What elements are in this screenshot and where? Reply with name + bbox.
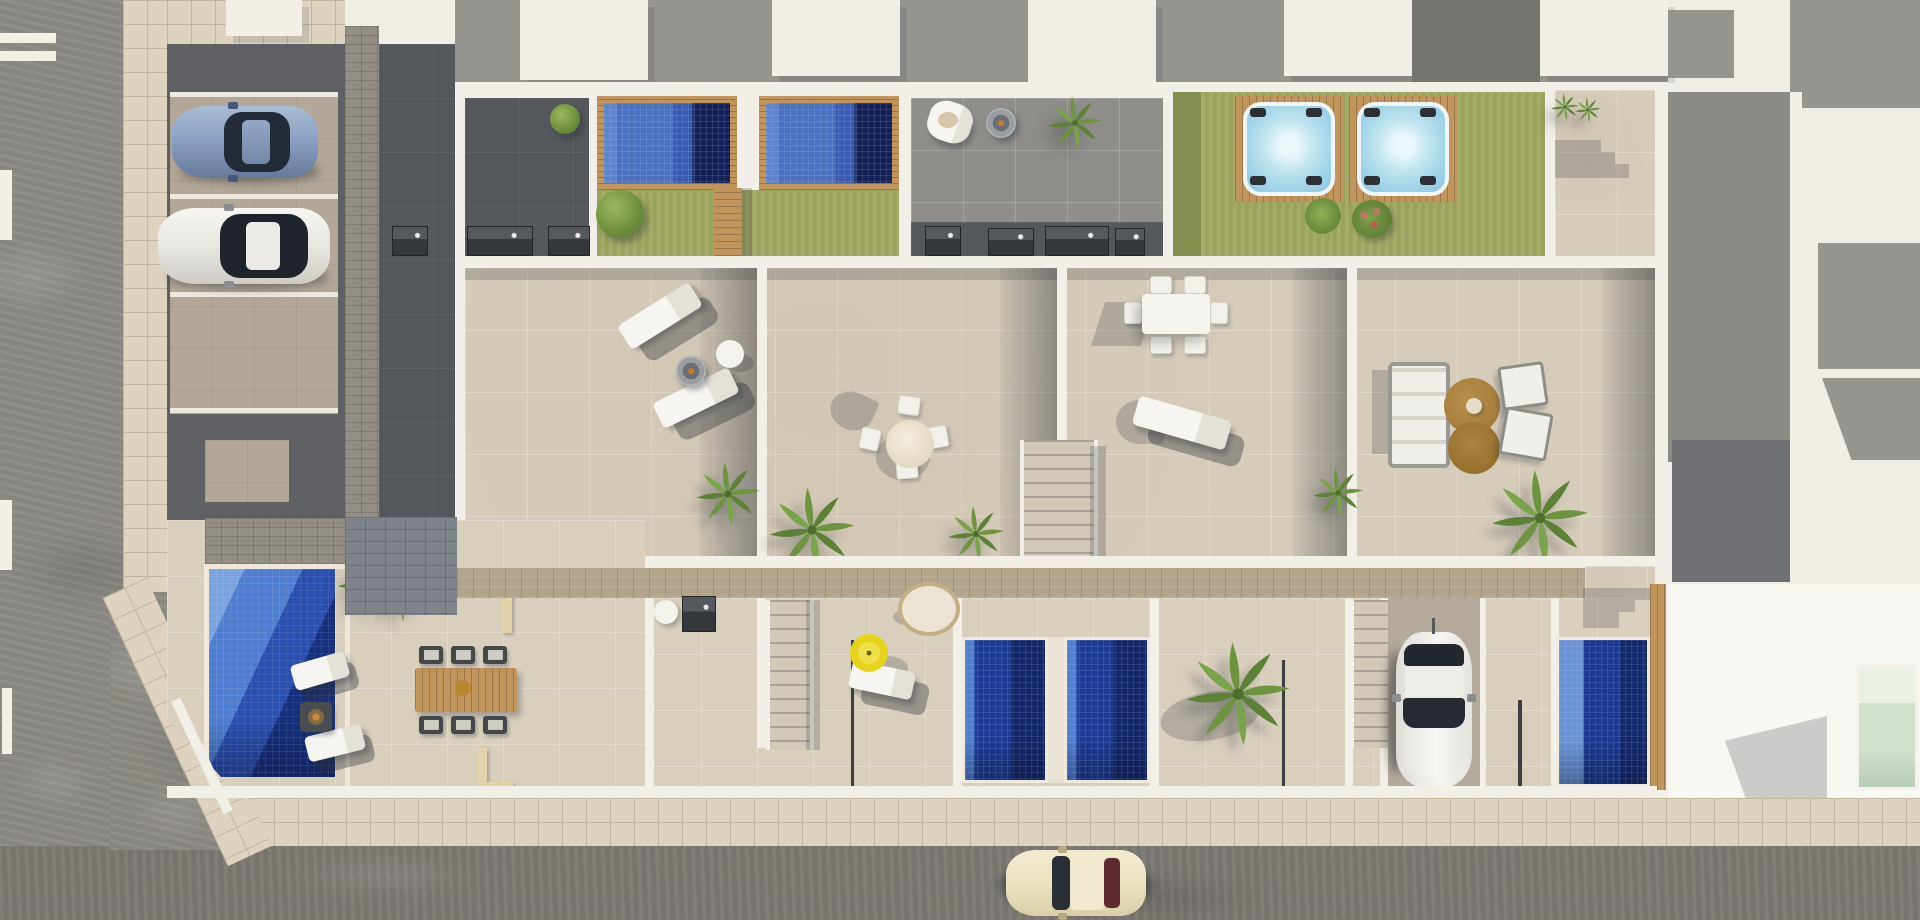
- bean-lounger-cushion: [938, 112, 958, 128]
- yard-round-table: [654, 600, 678, 624]
- crosswalk-bar-1: [0, 33, 56, 43]
- right-steps-shadow-1: [1583, 588, 1653, 600]
- grill-unit3-a: [925, 226, 961, 256]
- roof-slab-4: [1284, 0, 1412, 76]
- neighbor-dark-slab: [1672, 440, 1790, 582]
- staircase-terrace-shadow: [1090, 446, 1106, 558]
- upper-wall-1: [589, 96, 597, 256]
- garden-table-bowl: [455, 680, 471, 696]
- rug-tray: [1466, 398, 1482, 414]
- hot-tub-1-pad-ne: [1306, 108, 1322, 117]
- dining3-chair-e: [1210, 302, 1228, 324]
- palm-terrace2-c: [946, 504, 1006, 564]
- hot-tub-1-pad-nw: [1250, 108, 1266, 117]
- garden-chair-n3: [483, 646, 507, 664]
- armchair-2: [1498, 406, 1554, 462]
- white-suv: [1394, 632, 1474, 790]
- white-suv-hood: [1404, 728, 1464, 776]
- plunge-pool-right: [1556, 637, 1650, 787]
- neighbor-roof-topright: [1790, 0, 1920, 108]
- roof-pool-1: [604, 103, 730, 183]
- dining3-chair-s2: [1184, 336, 1206, 354]
- white-suv-mirror-right: [1467, 694, 1476, 702]
- cream-car-windshield: [1052, 856, 1070, 910]
- armchair-1: [1497, 361, 1549, 411]
- neighbor-wall-vertical: [1790, 92, 1802, 462]
- staircase-yard-left-shadow: [806, 600, 820, 750]
- white-car-roof: [246, 222, 280, 270]
- dining2-table: [886, 420, 934, 468]
- garden-fire-table-top: [308, 709, 324, 725]
- hot-tub-1-pad-sw: [1250, 176, 1266, 185]
- grill-unit4-a: [1045, 226, 1109, 256]
- lawn-shade-band: [1173, 92, 1201, 256]
- right-steps-shadow-2: [1583, 600, 1635, 612]
- entry-corridor: [379, 44, 457, 522]
- garden-chair-n1: [419, 646, 443, 664]
- white-car-parked: [158, 204, 332, 290]
- grill-unit1-b: [548, 226, 590, 256]
- hot-tub-2-pad-sw: [1364, 176, 1380, 185]
- yard-grill: [682, 596, 716, 632]
- roof-slab-3: [1028, 0, 1156, 86]
- side-terrace-step-shadow-3: [1555, 164, 1629, 178]
- white-suv-rear-glass: [1404, 644, 1464, 666]
- garden-fire-table: [300, 702, 332, 732]
- building-left-wall: [455, 96, 465, 568]
- palm-side-terrace-2: [1574, 96, 1602, 124]
- dining3-table: [1142, 294, 1210, 334]
- yards-bottom-wall: [167, 786, 1657, 798]
- side-table: [716, 340, 744, 368]
- hot-tub-1-pad-se: [1306, 176, 1322, 185]
- cream-car-mirror-top: [1058, 846, 1067, 853]
- rose-bush: [1352, 200, 1392, 238]
- yard-pole-3: [1518, 700, 1522, 788]
- wooden-walkway: [457, 568, 1585, 598]
- outdoor-sofa: [1388, 362, 1450, 468]
- street-bottom: [0, 846, 1920, 920]
- roof-slab-5: [1540, 0, 1668, 76]
- lawn-shrub: [596, 190, 644, 238]
- dining3-chair-s1: [1150, 336, 1172, 354]
- garden-chair-s2: [451, 716, 475, 734]
- lawn-sprig: [1305, 198, 1341, 234]
- aerial-render-scene: Aerial top-down 3D architectural render …: [0, 0, 1920, 920]
- roof-slab-2: [772, 0, 900, 76]
- palm-terrace3: [1311, 466, 1365, 520]
- roof-slab-top-left: [226, 0, 302, 36]
- stall-line-2: [170, 194, 338, 199]
- paver-band: [205, 518, 345, 564]
- white-car-mirror-bottom: [224, 281, 234, 288]
- roof-pool-2: [766, 103, 892, 183]
- upper-wall-between-pools: [737, 96, 759, 190]
- paver-block: [345, 517, 457, 615]
- terrace4-right-shadow: [1602, 268, 1655, 558]
- upper-wall-2: [899, 96, 911, 256]
- hot-tub-2-pad-nw: [1364, 108, 1380, 117]
- grill-unit1-a: [467, 226, 533, 256]
- neighbor-roof-slope: [1822, 378, 1920, 460]
- garden-chair-s1: [419, 716, 443, 734]
- stall-line-4: [170, 408, 338, 413]
- neighbor-roof-small: [1668, 10, 1734, 78]
- neighbor-pool: [1856, 664, 1918, 790]
- grill-unit4-b: [1115, 228, 1145, 256]
- blue-car-mirror-top: [228, 102, 238, 109]
- sidewalk-left: [123, 0, 167, 604]
- dining3-chair-n1: [1150, 276, 1172, 294]
- white-suv-mirror-left: [1392, 694, 1401, 702]
- yard-wall-3: [953, 598, 962, 788]
- yard-wall-4: [1150, 598, 1159, 788]
- blue-car: [172, 102, 320, 184]
- white-suv-antenna: [1432, 618, 1435, 634]
- neighbor-roof-large: [1668, 92, 1790, 462]
- palm-upper-patio: [1046, 94, 1104, 152]
- grill-unit3-b: [988, 228, 1034, 256]
- garden-chair-n2: [451, 646, 475, 664]
- palm-terrace4: [1488, 466, 1592, 570]
- palm-terrace2-a: [694, 460, 762, 528]
- white-suv-windshield: [1403, 698, 1465, 728]
- yellow-parasol: [850, 634, 888, 672]
- staircase-terrace: [1020, 440, 1098, 558]
- hot-tub-2-pad-se: [1420, 176, 1436, 185]
- plunge-pool-b: [1064, 637, 1150, 783]
- grill-corridor: [392, 226, 428, 256]
- hot-tub-2-pad-ne: [1420, 108, 1436, 117]
- dining2-chair-n: [897, 395, 921, 417]
- palm-backyard: [1182, 638, 1294, 750]
- lane-dash-2: [0, 500, 12, 570]
- paver-path-vertical: [345, 26, 379, 522]
- side-terrace-step-shadow-2: [1555, 152, 1615, 164]
- white-car-mirror-top: [224, 204, 234, 211]
- driveway-apron: [205, 440, 289, 502]
- roof-slab-1: [520, 0, 648, 80]
- right-steps-shadow-3: [1583, 612, 1619, 628]
- wooden-gate: [1650, 584, 1666, 790]
- dining3-chair-w: [1124, 302, 1142, 324]
- stall-line-3: [170, 292, 338, 297]
- white-suv-roof: [1405, 666, 1463, 698]
- garden-chair-s3: [483, 716, 507, 734]
- side-terrace-step-shadow-1: [1555, 140, 1601, 152]
- yard-wall-2: [757, 598, 766, 748]
- round-tree-upper: [550, 104, 580, 134]
- sidewalk-bottom: [226, 798, 1920, 846]
- road-left: [0, 0, 123, 920]
- pool-divider-strip: [1048, 637, 1064, 783]
- plunge-pool-a: [962, 637, 1048, 783]
- blue-car-mirror-bottom: [228, 175, 238, 182]
- lane-dash-3: [2, 688, 12, 754]
- neighbor-roof-mid: [1818, 243, 1920, 369]
- wooden-steps-shadow: [742, 188, 752, 256]
- cream-car-mirror-bottom: [1058, 913, 1067, 920]
- wooden-steps-lawn: [714, 188, 742, 256]
- hanging-egg-chair: [898, 582, 960, 636]
- cream-car-roof: [1070, 856, 1104, 910]
- fire-bowl-upper: [986, 108, 1016, 138]
- terrace-top-wall: [455, 256, 1668, 268]
- dining3-chair-n2: [1184, 276, 1206, 294]
- cream-car: [1006, 848, 1148, 918]
- stall-line-1: [170, 92, 338, 97]
- cream-car-rear-window: [1104, 858, 1120, 908]
- upper-wall-3: [1163, 96, 1173, 256]
- fire-bowl-terrace1: [676, 356, 706, 386]
- roof-dark-block: [1412, 0, 1540, 82]
- crosswalk-bar-2: [0, 51, 56, 61]
- yard-wall-1: [645, 598, 654, 788]
- lane-dash-1: [0, 170, 12, 240]
- blue-car-roof: [242, 120, 270, 164]
